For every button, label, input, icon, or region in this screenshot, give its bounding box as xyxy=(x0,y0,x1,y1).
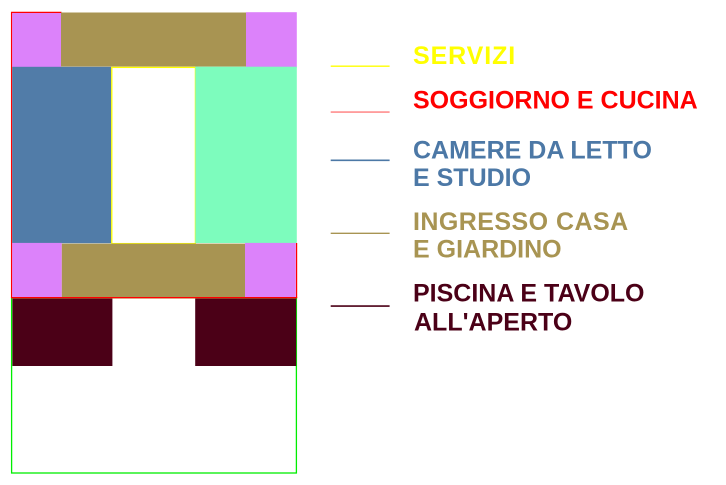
svg-text:ALL'APERTO: ALL'APERTO xyxy=(414,308,572,336)
svg-text:E STUDIO: E STUDIO xyxy=(413,164,531,192)
svg-text:INGRESSO CASA: INGRESSO CASA xyxy=(413,208,629,236)
svg-text:SERVIZI: SERVIZI xyxy=(413,42,516,70)
svg-text:SOGGIORNO E CUCINA: SOGGIORNO E CUCINA xyxy=(413,87,698,115)
svg-text:PISCINA E TAVOLO: PISCINA E TAVOLO xyxy=(413,280,645,308)
svg-text:E GIARDINO: E GIARDINO xyxy=(413,235,562,263)
svg-text:CAMERE DA LETTO: CAMERE DA LETTO xyxy=(413,137,652,165)
